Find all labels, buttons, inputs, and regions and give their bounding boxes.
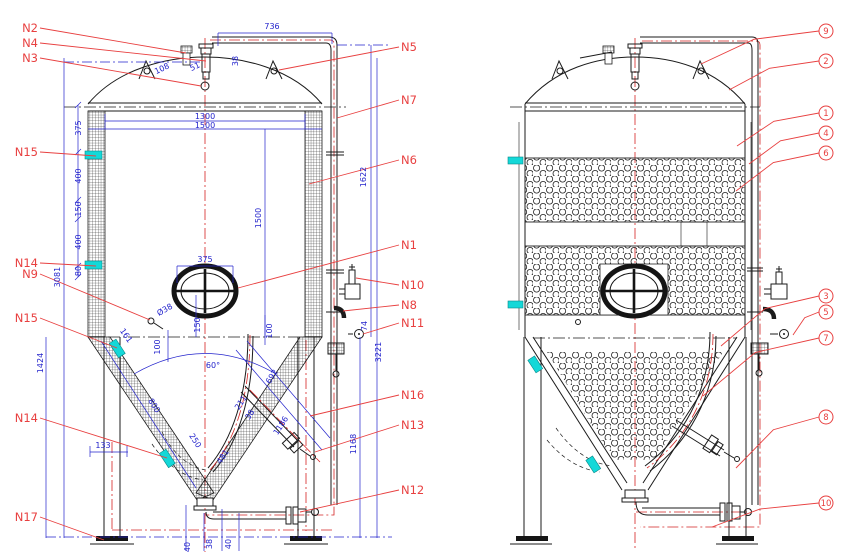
- sample-port-stub: [154, 323, 163, 329]
- nozzle-n14-upper: [85, 261, 102, 269]
- sample-port: [148, 318, 154, 324]
- gauge-center: [358, 333, 360, 335]
- nozzle-label-n7: N7: [401, 93, 417, 107]
- leader-n16: [310, 395, 399, 416]
- nozzle-label-n5: N5: [401, 40, 417, 54]
- insulation-left: [88, 111, 105, 337]
- jacket-connector: [681, 222, 707, 246]
- callout-number-2: 2: [823, 57, 828, 67]
- dimension-label: 1300: [195, 112, 215, 121]
- nozzle-label-n1: N1: [401, 238, 417, 252]
- dimension-label: 400: [74, 234, 83, 249]
- arm-knob-side: [735, 457, 740, 462]
- dimension-label: 150: [74, 201, 83, 216]
- nozzle-label-n13: N13: [401, 418, 424, 432]
- small-port: [576, 320, 581, 325]
- lug-hole-left: [144, 68, 150, 74]
- drain-neck: [197, 498, 213, 506]
- pipe-flanges-side: [747, 268, 763, 312]
- dimension-label: 40: [224, 539, 233, 549]
- side-nozzle-3: [528, 356, 543, 373]
- dimension-label: 1500: [195, 121, 215, 130]
- leader-n10: [356, 278, 399, 285]
- butterfly-valve-side: [751, 343, 768, 354]
- drain-neck-side: [625, 490, 645, 498]
- relief-valve-cap: [339, 264, 355, 294]
- dimension-label: 1186: [272, 415, 291, 437]
- valve-rod-knob-side: [756, 370, 762, 376]
- leader-n5: [279, 47, 399, 70]
- nozzle-label-n4: N4: [22, 36, 38, 50]
- leader-n2: [40, 28, 186, 53]
- callout-number-7: 7: [823, 334, 828, 344]
- dimension-label: 38: [231, 56, 240, 66]
- dimension-label: 1424: [36, 353, 45, 373]
- nozzle-label-n17: N17: [15, 510, 38, 524]
- dimension-label: 133: [95, 441, 110, 450]
- nozzle-label-n15: N15: [15, 145, 38, 159]
- dimension-label: 150: [193, 317, 202, 332]
- nozzle-label-n16: N16: [401, 388, 424, 402]
- pipe-flanges: [326, 152, 344, 312]
- callout-leader-4: [749, 133, 819, 164]
- leader-n7: [337, 100, 399, 118]
- dimension-label: 38: [205, 539, 214, 549]
- dimension-label: 375: [74, 120, 83, 135]
- nozzle-label-n8: N8: [401, 298, 417, 312]
- side-view: [500, 37, 789, 550]
- part-callouts: 92146357810: [819, 24, 833, 510]
- top-fitting-side: [603, 46, 614, 53]
- drain-valve-flange1: [286, 507, 291, 524]
- cip-nozzle-collar: [201, 48, 211, 54]
- butterfly-valve: [328, 343, 344, 354]
- drain-valve-flange2: [293, 507, 298, 524]
- dimension-label: 100: [153, 339, 162, 354]
- dimension-label: 3081: [53, 267, 62, 287]
- front-section-view: [46, 33, 392, 552]
- callout-leader-1: [737, 113, 819, 146]
- elbow-fitting: [334, 308, 344, 318]
- dimension-label: 375: [197, 255, 212, 264]
- drawing-canvas: 7363810851130015003754001504008030811424…: [0, 0, 860, 556]
- dimension-label: 1622: [359, 167, 368, 187]
- dimension-label: 736: [264, 22, 279, 31]
- dimension-label: 400: [74, 168, 83, 183]
- dimension-label: Ø38: [155, 301, 174, 318]
- nozzle-label-n11: N11: [401, 316, 424, 330]
- callout-number-9: 9: [823, 27, 828, 37]
- callout-leader-2: [729, 61, 819, 90]
- relief-valve-body: [345, 284, 360, 299]
- relief-valve-stem: [349, 270, 355, 284]
- nozzle-n2-fitting: [181, 46, 192, 53]
- cip-nozzle-tip: [203, 72, 209, 79]
- callout-leader-6: [736, 153, 819, 191]
- callout-leader-10: [712, 503, 819, 527]
- racking-arm-valve-side: [703, 435, 724, 457]
- nozzle-label-n9: N9: [22, 267, 38, 281]
- relief-valve-stem-side: [776, 272, 782, 284]
- callout-number-5: 5: [823, 308, 828, 318]
- callout-number-6: 6: [823, 149, 828, 159]
- top-fitting-body-side: [605, 53, 612, 64]
- elbow-fitting-side: [763, 309, 774, 319]
- callout-number-1: 1: [823, 109, 828, 119]
- dimension-label: 250: [187, 432, 203, 450]
- cip-nozzle-flange: [199, 44, 213, 48]
- nozzle-label-n14: N14: [15, 411, 38, 425]
- drain-pipe-side: [636, 502, 720, 515]
- dimension-label: 74: [360, 321, 369, 331]
- callout-number-8: 8: [823, 413, 828, 423]
- side-nozzle-2: [508, 301, 523, 308]
- nozzle-label-n15: N15: [15, 311, 38, 325]
- leader-n15: [40, 318, 117, 348]
- callout-number-4: 4: [823, 129, 828, 139]
- dimension-label: 60°: [206, 361, 220, 370]
- nozzle-label-n6: N6: [401, 153, 417, 167]
- relief-valve-body-side: [771, 284, 787, 299]
- dimension-label: 3221: [374, 342, 383, 362]
- callout-number-10: 10: [821, 499, 832, 509]
- dimple-jacket-upper: [525, 158, 745, 222]
- nozzle-label-n12: N12: [401, 483, 424, 497]
- nozzle-label-n10: N10: [401, 278, 424, 292]
- lug-hole-side1: [557, 68, 563, 74]
- insulation-right: [305, 111, 322, 337]
- dimension-label: 1168: [349, 434, 358, 454]
- dimension-label: 1500: [254, 208, 263, 228]
- nozzle-label-n3: N3: [22, 51, 38, 65]
- relief-valve-cap-side: [764, 266, 782, 294]
- leader-n6: [309, 160, 399, 184]
- dimension-label: 40: [183, 542, 192, 552]
- callout-leader-8: [736, 417, 819, 468]
- callout-leader-5: [793, 312, 819, 335]
- gauge-center-side: [783, 333, 785, 335]
- side-nozzle-1: [508, 157, 523, 164]
- fermenter-technical-drawing: 7363810851130015003754001504008030811424…: [0, 0, 860, 556]
- leader-n12: [300, 490, 399, 512]
- leader-n17: [40, 517, 104, 540]
- nozzle-label-n2: N2: [22, 21, 38, 35]
- dimension-label: 80: [74, 266, 83, 276]
- drain-pipe: [206, 512, 286, 519]
- callout-number-3: 3: [823, 292, 828, 302]
- foot-right-side: [722, 536, 754, 541]
- dimension-label: 100: [265, 323, 274, 338]
- foot-left-side: [516, 536, 548, 541]
